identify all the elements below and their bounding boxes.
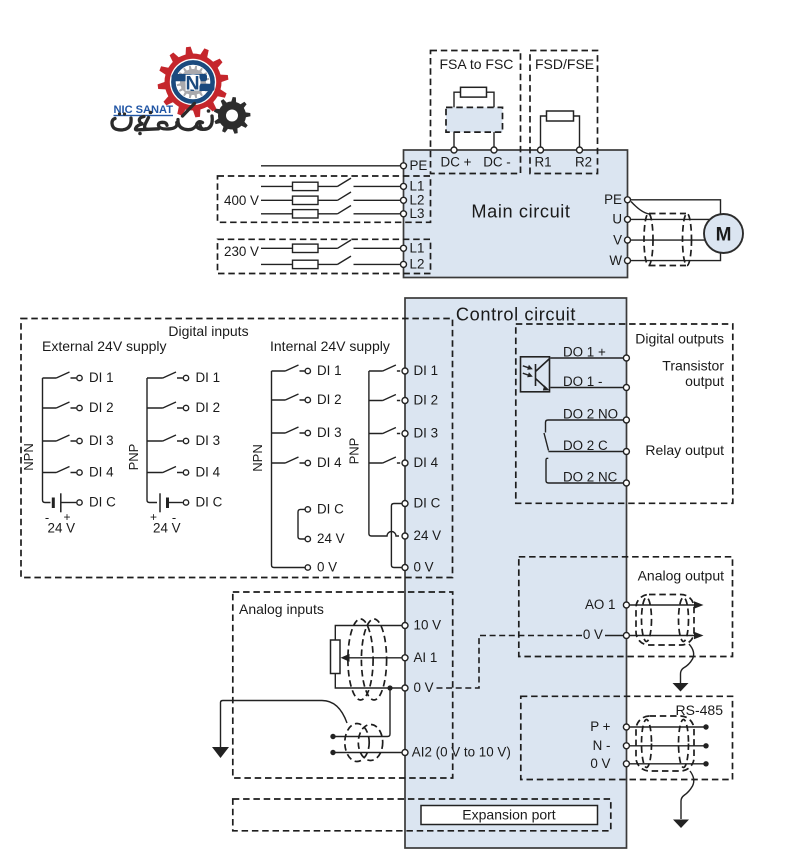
svg-text:FSA to FSC: FSA to FSC <box>440 56 514 72</box>
svg-text:DI C: DI C <box>317 502 344 517</box>
svg-text:Analog output: Analog output <box>638 568 725 584</box>
svg-text:External 24V supply: External 24V supply <box>42 338 167 354</box>
svg-text:DC -: DC - <box>483 155 511 170</box>
svg-text:PNP: PNP <box>347 438 362 465</box>
svg-text:400 V: 400 V <box>224 193 259 208</box>
svg-text:DI 1: DI 1 <box>414 363 439 378</box>
svg-text:0 V: 0 V <box>590 756 610 771</box>
svg-text:DI 3: DI 3 <box>89 433 114 448</box>
svg-text:24 V: 24 V <box>153 521 181 536</box>
svg-text:NIC SANAT: NIC SANAT <box>114 104 174 116</box>
svg-text:N -: N - <box>593 738 611 753</box>
svg-text:24 V: 24 V <box>414 528 442 543</box>
svg-text:Control circuit: Control circuit <box>456 305 576 325</box>
svg-text:24 V: 24 V <box>48 521 76 536</box>
svg-text:DO 1 +: DO 1 + <box>563 345 606 360</box>
svg-text:DI 1: DI 1 <box>196 370 221 385</box>
svg-text:M: M <box>716 225 732 246</box>
svg-text:Transistor: Transistor <box>662 358 724 374</box>
svg-text:230 V: 230 V <box>224 244 259 259</box>
svg-text:DI 4: DI 4 <box>196 465 221 480</box>
svg-text:FSD/FSE: FSD/FSE <box>535 56 594 72</box>
svg-text:DO 2 NO: DO 2 NO <box>563 407 618 422</box>
svg-text:P +: P + <box>590 719 610 734</box>
svg-text:DI 2: DI 2 <box>196 400 221 415</box>
svg-text:0 V: 0 V <box>414 560 434 575</box>
svg-text:PNP: PNP <box>126 444 141 471</box>
svg-text:PE: PE <box>604 192 622 207</box>
svg-text:DO 2 NC: DO 2 NC <box>563 470 618 485</box>
svg-text:DI 3: DI 3 <box>196 433 221 448</box>
svg-text:DI 4: DI 4 <box>317 455 342 470</box>
svg-text:0 V: 0 V <box>583 627 603 642</box>
svg-text:L1: L1 <box>410 179 425 194</box>
svg-text:U: U <box>612 212 622 227</box>
svg-text:NPN: NPN <box>21 443 36 470</box>
svg-text:DI 2: DI 2 <box>89 400 114 415</box>
svg-text:DI 4: DI 4 <box>89 465 114 480</box>
svg-text:Internal 24V supply: Internal 24V supply <box>270 338 390 354</box>
svg-text:DI C: DI C <box>196 495 223 510</box>
svg-text:V: V <box>613 232 622 247</box>
svg-text:Main circuit: Main circuit <box>471 202 570 222</box>
svg-text:DC +: DC + <box>441 155 472 170</box>
svg-text:AI 1: AI 1 <box>414 650 438 665</box>
svg-text:NPN: NPN <box>250 444 265 471</box>
svg-text:R2: R2 <box>575 155 592 170</box>
svg-text:DI 4: DI 4 <box>414 455 439 470</box>
svg-text:Expansion port: Expansion port <box>462 807 556 823</box>
svg-text:24 V: 24 V <box>317 531 345 546</box>
svg-text:DO 2 C: DO 2 C <box>563 438 608 453</box>
svg-text:0 V: 0 V <box>317 560 337 575</box>
svg-text:W: W <box>609 253 622 268</box>
svg-text:AI2 (0 V to 10 V): AI2 (0 V to 10 V) <box>412 745 511 760</box>
svg-text:N: N <box>185 73 199 95</box>
svg-text:DI 3: DI 3 <box>414 426 439 441</box>
svg-text:Digital outputs: Digital outputs <box>635 331 724 347</box>
svg-text:Digital inputs: Digital inputs <box>168 323 248 339</box>
svg-text:L2: L2 <box>410 257 425 272</box>
svg-text:DO 1 -: DO 1 - <box>563 374 602 389</box>
svg-text:R1: R1 <box>534 155 551 170</box>
svg-text:DI 1: DI 1 <box>89 370 114 385</box>
svg-text:L1: L1 <box>410 241 425 256</box>
svg-text:DI 2: DI 2 <box>414 393 439 408</box>
svg-text:output: output <box>685 373 724 389</box>
svg-text:DI 2: DI 2 <box>317 392 342 407</box>
svg-text:PE: PE <box>410 158 428 173</box>
svg-text:AO 1: AO 1 <box>585 597 616 612</box>
svg-text:Analog inputs: Analog inputs <box>239 601 324 617</box>
svg-text:DI 1: DI 1 <box>317 363 342 378</box>
svg-text:DI C: DI C <box>89 495 116 510</box>
svg-text:DI 3: DI 3 <box>317 425 342 440</box>
svg-text:DI C: DI C <box>414 496 441 511</box>
svg-text:Relay output: Relay output <box>645 442 724 458</box>
svg-text:L3: L3 <box>410 206 425 221</box>
svg-text:10 V: 10 V <box>414 618 442 633</box>
svg-text:0 V: 0 V <box>414 680 434 695</box>
